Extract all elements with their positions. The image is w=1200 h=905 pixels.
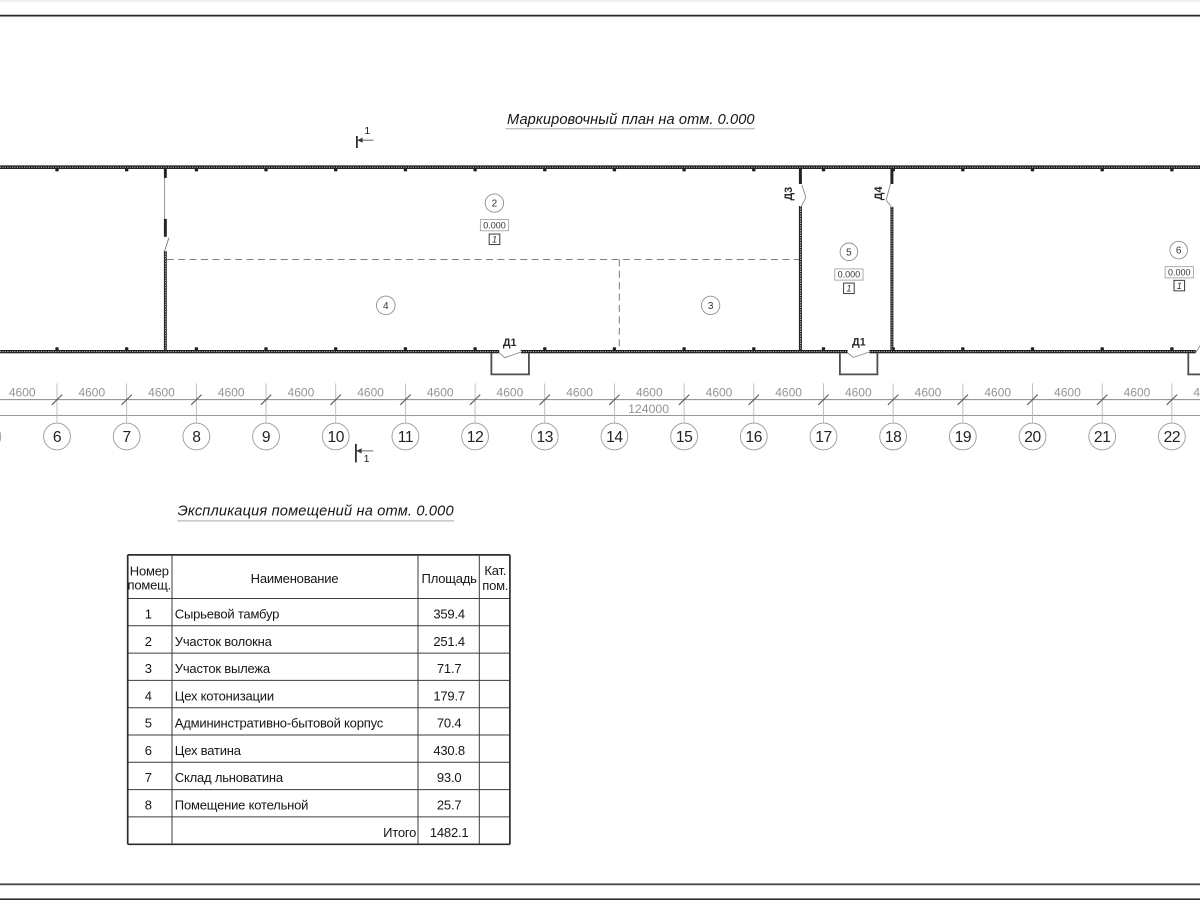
svg-text:25.7: 25.7 [437, 798, 462, 813]
svg-text:4600: 4600 [218, 386, 245, 400]
svg-text:6: 6 [145, 743, 152, 758]
svg-text:Наименование: Наименование [251, 571, 339, 586]
svg-text:13: 13 [536, 429, 553, 446]
svg-text:1: 1 [846, 284, 851, 294]
svg-text:Площадь: Площадь [422, 571, 478, 586]
svg-text:18: 18 [885, 429, 902, 446]
svg-text:Админинстративно-бытовой корпу: Админинстративно-бытовой корпус [175, 716, 384, 731]
svg-text:Д1: Д1 [503, 337, 517, 349]
svg-text:Склад льноватина: Склад льноватина [175, 770, 284, 785]
svg-text:4600: 4600 [497, 386, 524, 400]
svg-text:9: 9 [262, 429, 270, 446]
svg-text:1: 1 [145, 606, 152, 621]
svg-text:Сырьевой тамбур: Сырьевой тамбур [175, 606, 279, 621]
svg-text:7: 7 [145, 770, 152, 785]
svg-text:Участок вылежа: Участок вылежа [175, 661, 271, 676]
svg-text:7: 7 [123, 429, 131, 446]
svg-text:4: 4 [383, 301, 389, 312]
svg-text:70.4: 70.4 [437, 716, 462, 731]
svg-text:4600: 4600 [9, 386, 36, 400]
svg-text:2: 2 [145, 634, 152, 649]
svg-text:Д4: Д4 [873, 187, 885, 201]
svg-text:2: 2 [492, 199, 498, 210]
svg-text:1482.1: 1482.1 [430, 825, 469, 840]
svg-text:6: 6 [1176, 246, 1182, 257]
svg-text:Итого: Итого [383, 825, 416, 840]
svg-text:Экспликация помещений на отм.: Экспликация помещений на отм. 0.000 [178, 504, 454, 520]
svg-text:12: 12 [467, 429, 484, 446]
svg-text:4600: 4600 [288, 386, 315, 400]
svg-text:359.4: 359.4 [433, 606, 465, 621]
svg-text:16: 16 [746, 429, 763, 446]
svg-text:93.0: 93.0 [437, 770, 462, 785]
svg-text:пом.: пом. [482, 578, 508, 593]
svg-text:4600: 4600 [148, 386, 175, 400]
svg-text:124000: 124000 [628, 402, 669, 416]
svg-text:3: 3 [708, 301, 714, 312]
svg-text:4600: 4600 [357, 386, 384, 400]
svg-text:4600: 4600 [845, 386, 872, 400]
svg-text:4600: 4600 [78, 386, 105, 400]
svg-text:Маркировочный план на отм. 0.0: Маркировочный план на отм. 0.000 [507, 112, 755, 128]
svg-text:4600: 4600 [1054, 386, 1081, 400]
svg-text:4600: 4600 [1124, 386, 1151, 400]
svg-text:Д3: Д3 [783, 187, 795, 201]
svg-text:5: 5 [846, 247, 852, 258]
svg-text:4600: 4600 [566, 386, 593, 400]
svg-text:4600: 4600 [706, 386, 733, 400]
svg-text:4600: 4600 [636, 386, 663, 400]
svg-text:1: 1 [364, 453, 370, 465]
svg-text:помещ.: помещ. [128, 577, 172, 592]
svg-text:17: 17 [815, 429, 832, 446]
svg-text:71.7: 71.7 [437, 661, 462, 676]
svg-text:22: 22 [1164, 429, 1181, 446]
svg-text:4600: 4600 [1193, 386, 1200, 400]
svg-text:1: 1 [364, 125, 370, 137]
svg-text:4: 4 [145, 688, 152, 703]
svg-text:21: 21 [1094, 429, 1111, 446]
svg-text:8: 8 [192, 429, 200, 446]
svg-text:4600: 4600 [427, 386, 454, 400]
svg-text:4600: 4600 [915, 386, 942, 400]
svg-text:0.000: 0.000 [483, 220, 506, 230]
svg-text:1: 1 [492, 235, 497, 245]
svg-text:15: 15 [676, 429, 693, 446]
svg-text:6: 6 [53, 429, 61, 446]
svg-text:251.4: 251.4 [433, 634, 465, 649]
svg-text:0.000: 0.000 [838, 270, 861, 280]
svg-text:1: 1 [1177, 281, 1182, 291]
svg-text:Участок волокна: Участок волокна [175, 634, 273, 649]
svg-text:4600: 4600 [984, 386, 1011, 400]
svg-text:Помещение котельной: Помещение котельной [175, 798, 308, 813]
svg-text:3: 3 [145, 661, 152, 676]
svg-text:8: 8 [145, 798, 152, 813]
svg-text:Д1: Д1 [852, 337, 866, 349]
svg-text:0.000: 0.000 [1168, 268, 1191, 278]
svg-text:5: 5 [145, 716, 152, 731]
svg-text:430.8: 430.8 [433, 743, 465, 758]
svg-text:Цех котонизации: Цех котонизации [175, 688, 274, 703]
svg-text:11: 11 [398, 429, 413, 446]
svg-text:Цех ватина: Цех ватина [175, 743, 242, 758]
svg-text:Кат.: Кат. [484, 563, 506, 578]
svg-text:179.7: 179.7 [433, 688, 465, 703]
svg-text:20: 20 [1024, 429, 1041, 446]
svg-text:4600: 4600 [775, 386, 802, 400]
svg-text:14: 14 [606, 429, 623, 446]
svg-text:19: 19 [955, 429, 972, 446]
svg-text:10: 10 [327, 429, 344, 446]
